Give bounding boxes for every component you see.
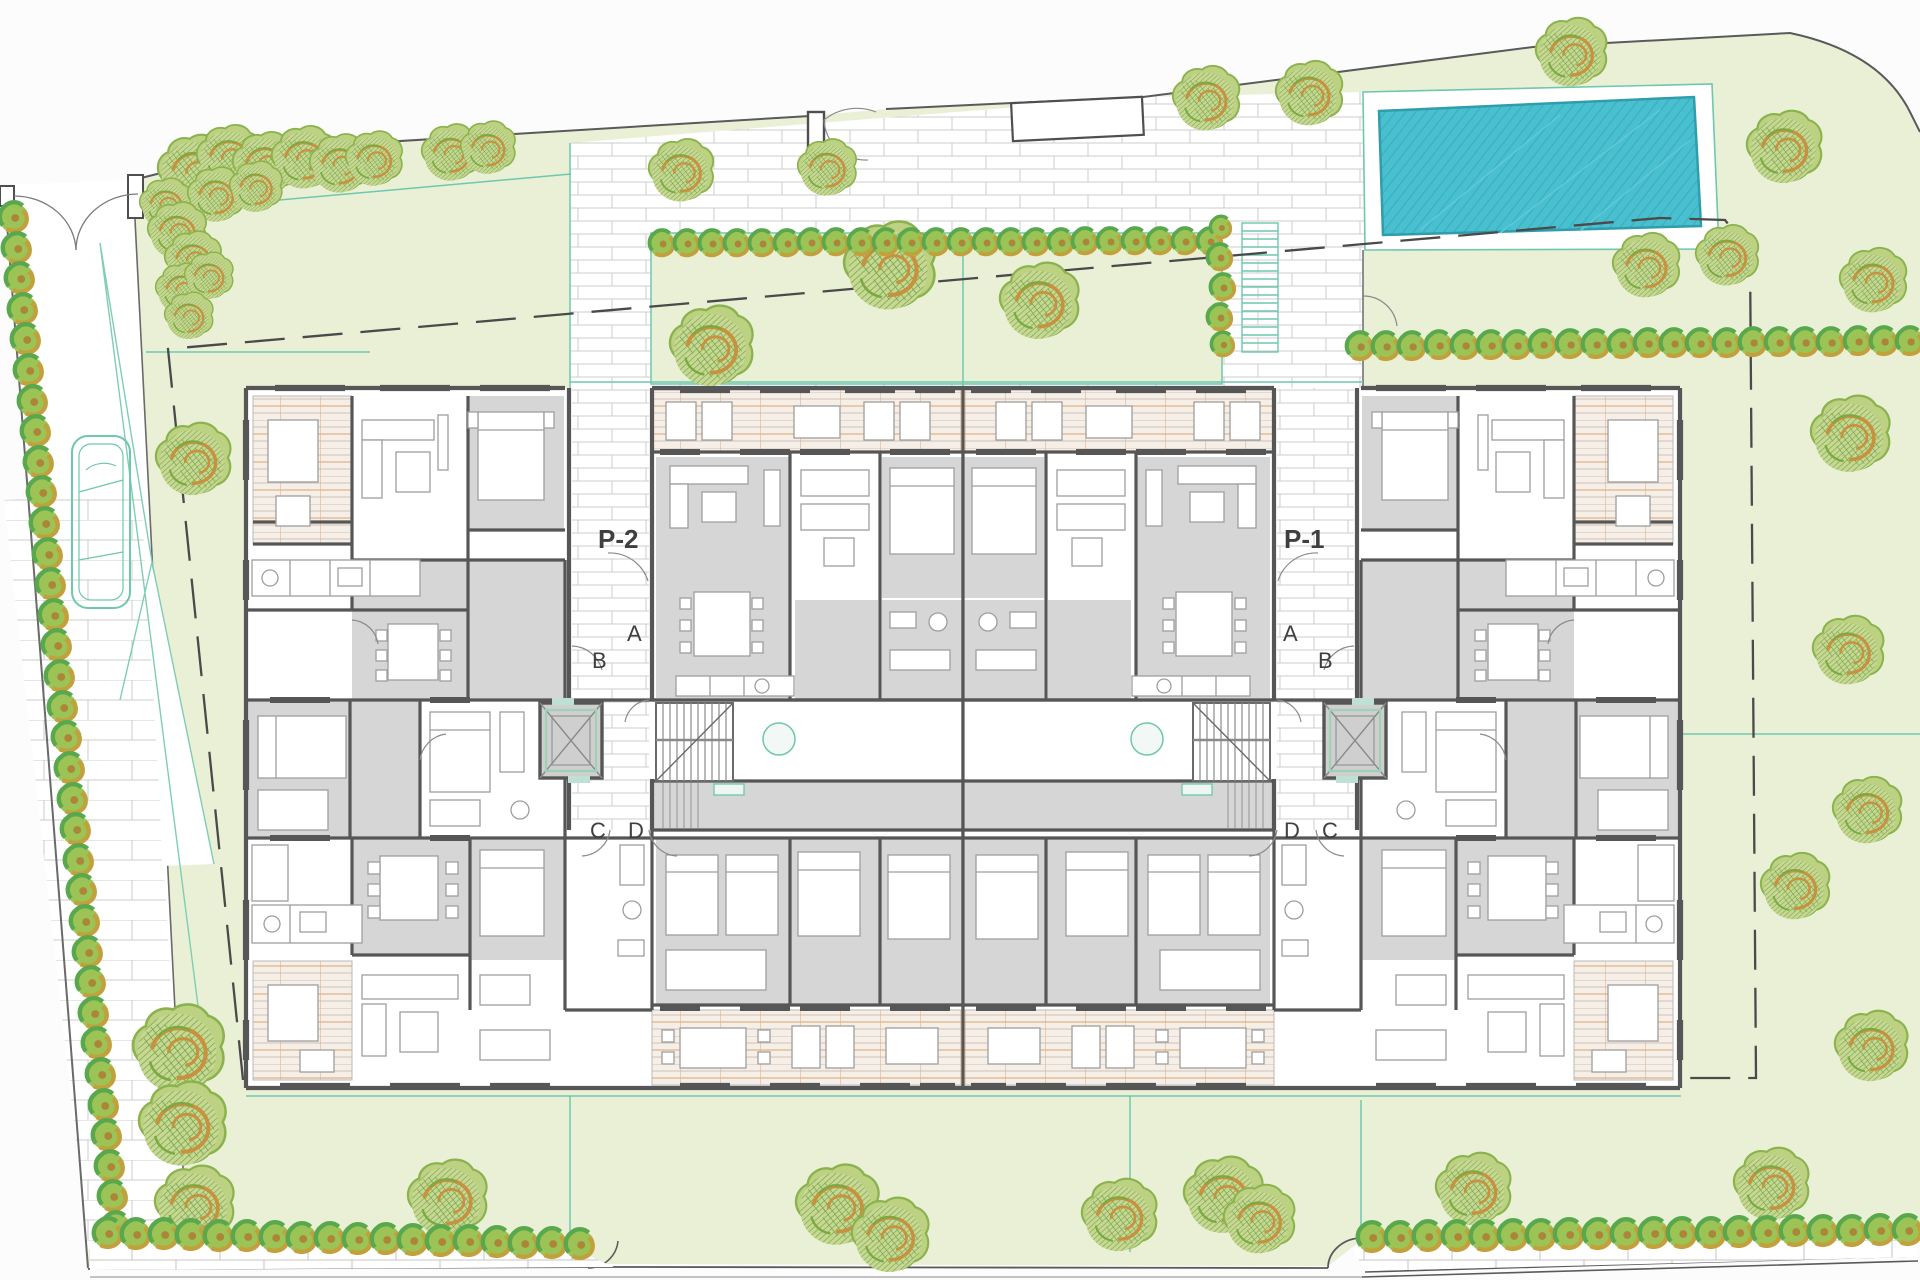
svg-text:B: B bbox=[1318, 648, 1333, 673]
svg-text:D: D bbox=[628, 818, 644, 843]
svg-text:B: B bbox=[592, 648, 607, 673]
svg-text:D: D bbox=[1284, 818, 1300, 843]
svg-text:A: A bbox=[1283, 621, 1298, 646]
svg-text:A: A bbox=[627, 621, 642, 646]
svg-text:C: C bbox=[1322, 818, 1338, 843]
svg-text:P-2: P-2 bbox=[598, 524, 638, 554]
svg-text:C: C bbox=[590, 818, 606, 843]
svg-text:P-1: P-1 bbox=[1284, 524, 1324, 554]
